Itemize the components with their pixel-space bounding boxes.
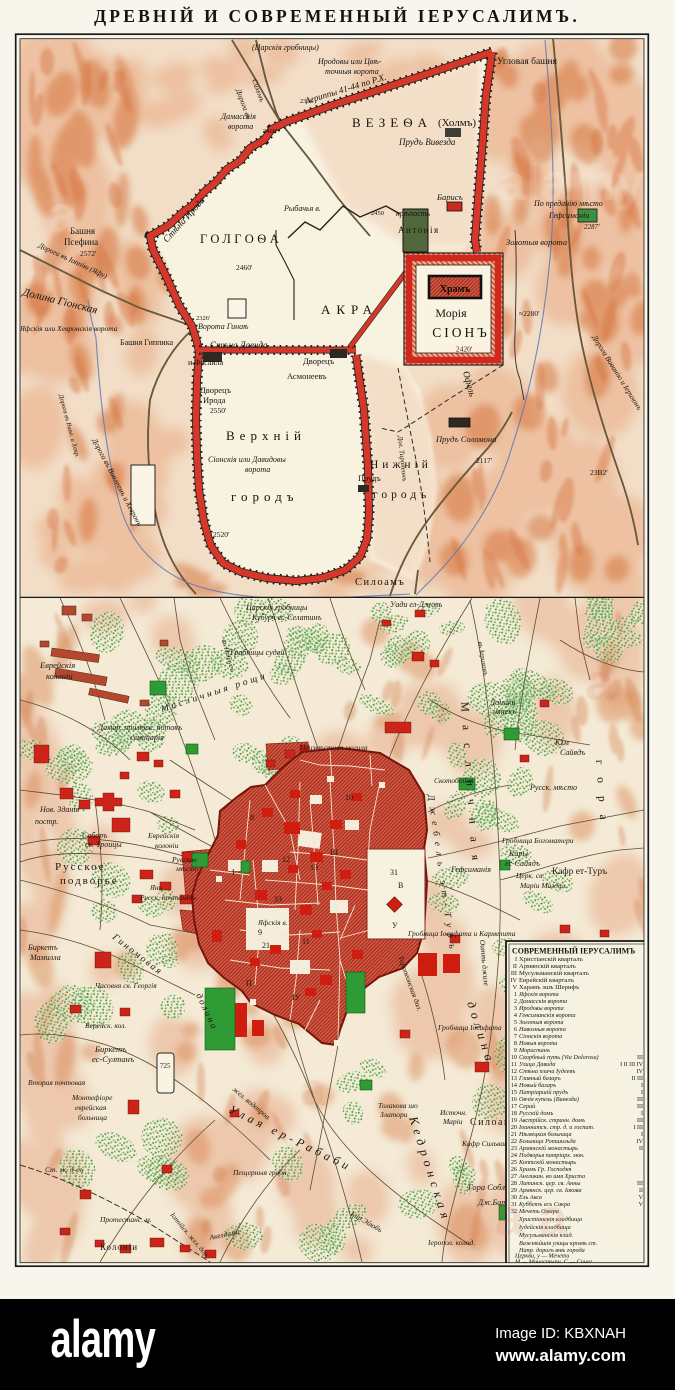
svg-text:alamy: alamy (51, 1309, 157, 1369)
svg-text:Асмонеевъ: Асмонеевъ (287, 371, 327, 381)
svg-text:еврейская: еврейская (75, 1103, 107, 1112)
svg-text:a: a (48, 186, 78, 244)
svg-text:8: 8 (250, 813, 254, 822)
svg-text:Биркетъ: Биркетъ (94, 1044, 127, 1054)
svg-text:(Холмъ): (Холмъ) (438, 117, 476, 129)
svg-text:колоніи: колоніи (46, 671, 73, 681)
svg-text:нянекъ: нянекъ (493, 707, 516, 716)
svg-text:10: 10 (511, 1054, 517, 1061)
svg-text:Армянскій монастырь: Армянскій монастырь (518, 1145, 578, 1152)
svg-text:Кафр Сильванъ: Кафр Сильванъ (461, 1139, 512, 1148)
svg-text:Коптскій монастырь: Коптскій монастырь (518, 1159, 576, 1166)
svg-text:Башня Гиппика: Башня Гиппика (120, 338, 173, 347)
svg-text:Стѣна плача Іудеевъ: Стѣна плача Іудеевъ (519, 1068, 576, 1075)
svg-text:I: I (641, 1090, 643, 1096)
svg-text:ІУ: ІУ (292, 993, 301, 1002)
svg-text:Вторая почтовая: Вторая почтовая (28, 1078, 86, 1087)
svg-text:Image ID: KBXNAH: Image ID: KBXNAH (495, 1325, 626, 1342)
svg-text:Янь: Янь (149, 883, 163, 892)
svg-text:подворье: подворье (60, 875, 119, 887)
svg-text:Источн.: Источн. (439, 1108, 467, 1117)
svg-text:Маріи: Маріи (442, 1117, 463, 1126)
svg-text:I III: I III (634, 1125, 644, 1131)
svg-text:Силоамъ: Силоамъ (355, 577, 405, 588)
svg-text:Золотыя ворота: Золотыя ворота (519, 1019, 563, 1026)
svg-text:Русское: Русское (171, 855, 198, 864)
svg-text:Сайядъ: Сайядъ (560, 748, 585, 757)
svg-text:Гефсиманіи: Гефсиманіи (548, 211, 589, 220)
svg-text:ворота: ворота (228, 122, 253, 131)
svg-text:Дворецъ: Дворецъ (200, 385, 232, 395)
svg-text:ворота: ворота (245, 465, 270, 474)
svg-text:24: 24 (511, 1152, 517, 1159)
svg-text:Яфскія или Хевронскія ворота: Яфскія или Хевронскія ворота (19, 324, 118, 333)
svg-text:I: I (515, 956, 517, 963)
svg-text:2460': 2460' (236, 263, 253, 272)
svg-text:Кубурч ес-Селатинъ: Кубурч ес-Селатинъ (251, 613, 321, 622)
svg-text:II: II (513, 963, 517, 970)
svg-text:Іоаннитск. стр. д. и госпит.: Іоаннитск. стр. д. и госпит. (518, 1124, 594, 1131)
svg-text:2326': 2326' (196, 315, 210, 322)
svg-text:Иродовы или Цвѣ-: Иродовы или Цвѣ- (317, 57, 382, 66)
svg-text:Стѣна Давида: Стѣна Давида (210, 340, 268, 350)
svg-text:Русск. мѣсто: Русск. мѣсто (529, 783, 577, 792)
svg-text:Серай: Серай (519, 1103, 536, 1110)
svg-text:Еврейскій кварталъ: Еврейскій кварталъ (519, 977, 575, 984)
svg-text:Дворецъ: Дворецъ (303, 356, 335, 366)
svg-text:a: a (300, 1063, 326, 1115)
svg-text:9: 9 (514, 1047, 517, 1054)
svg-text:a: a (585, 654, 615, 712)
svg-text:Новыя ворота: Новыя ворота (518, 1040, 557, 1047)
svg-text:alamy: alamy (497, 154, 645, 212)
svg-text:2117': 2117' (476, 456, 493, 465)
svg-text:ес-Сайядъ: ес-Сайядъ (505, 859, 540, 868)
svg-text:14: 14 (511, 1082, 517, 1089)
svg-text:Царскія гробницы: Царскія гробницы (245, 603, 308, 612)
svg-text:9: 9 (258, 928, 262, 937)
svg-text:Неизвѣстная могила: Неизвѣстная могила (299, 743, 368, 752)
svg-text:≈2280': ≈2280' (519, 309, 540, 318)
svg-text:Навозныя ворота: Навозныя ворота (518, 1026, 566, 1033)
svg-text:12: 12 (511, 1068, 517, 1075)
svg-text:I: I (641, 1111, 643, 1117)
svg-text:Армянскій кварталъ: Армянскій кварталъ (519, 963, 576, 970)
svg-text:10: 10 (345, 793, 353, 802)
svg-text:Кары: Кары (508, 849, 528, 858)
svg-text:III: III (511, 970, 517, 977)
svg-text:колоніи: колоніи (155, 841, 179, 850)
svg-text:Сіонскія или Давидовы: Сіонскія или Давидовы (208, 455, 286, 464)
svg-text:Антонія: Антонія (398, 225, 440, 235)
svg-text:Ш: Ш (330, 848, 338, 857)
svg-text:1: 1 (514, 991, 517, 998)
svg-text:11: 11 (302, 937, 310, 946)
svg-text:У: У (392, 921, 398, 930)
svg-text:Еврейскія: Еврейскія (39, 660, 75, 670)
svg-text:Гробница Іосафата и Кармелита: Гробница Іосафата и Кармелита (407, 929, 516, 938)
svg-text:IV: IV (637, 1069, 644, 1075)
svg-text:2287': 2287' (584, 223, 600, 231)
svg-text:Іеропол. колод.: Іеропол. колод. (427, 1238, 475, 1247)
svg-text:23В2': 23В2' (590, 468, 608, 477)
svg-text:больница: больница (78, 1113, 107, 1122)
svg-text:Монтефіоре: Монтефіоре (71, 1093, 113, 1102)
svg-text:Маріи Магдал.: Маріи Магдал. (519, 881, 567, 890)
svg-text:ДРЕВНІЙ И СОВРЕМЕННЫЙ ІЕРУСАЛИ: ДРЕВНІЙ И СОВРЕМЕННЫЙ ІЕРУСАЛИМЪ. (94, 6, 580, 26)
svg-text:Австрійск. странн. домъ: Австрійск. странн. домъ (518, 1117, 586, 1124)
svg-text:Англикан. во имя Христа: Англикан. во имя Христа (518, 1173, 585, 1180)
svg-text:2550': 2550' (210, 406, 227, 415)
svg-text:Верхній: Верхній (226, 428, 306, 443)
svg-text:5: 5 (514, 1019, 517, 1026)
svg-text:Храмъ: Храмъ (440, 284, 471, 295)
svg-text:Улица Давида: Улица Давида (519, 1061, 556, 1068)
svg-text:Нов. Зданія: Нов. Зданія (39, 805, 80, 814)
svg-text:20: 20 (511, 1124, 517, 1131)
svg-text:св. Троицы: св. Троицы (85, 840, 122, 849)
svg-text:26: 26 (511, 1166, 517, 1173)
svg-text:21: 21 (511, 1131, 517, 1138)
svg-text:Христіанскій кварталъ: Христіанскій кварталъ (519, 956, 583, 963)
svg-text:городъ: городъ (231, 489, 298, 504)
svg-text:АКРА: АКРА (321, 302, 378, 317)
svg-text:2336: 2336 (300, 98, 314, 105)
svg-text:2450: 2450 (371, 210, 384, 217)
svg-text:V: V (639, 1195, 644, 1201)
svg-text:семинарія: семинарія (130, 733, 164, 742)
svg-text:19: 19 (511, 1117, 517, 1124)
svg-text:Верейск. кол.: Верейск. кол. (85, 1021, 126, 1030)
svg-text:Харамъ эшъ Шерифъ: Харамъ эшъ Шерифъ (519, 984, 580, 991)
svg-text:Морія: Морія (435, 306, 467, 320)
svg-text:Еврейскія: Еврейскія (147, 831, 180, 840)
svg-text:Домики: Домики (489, 698, 516, 707)
svg-text:Яфскія в.: Яфскія в. (257, 918, 288, 927)
svg-text:I: I (641, 1083, 643, 1089)
svg-text:4: 4 (514, 1012, 517, 1019)
svg-text:2460': 2460' (263, 128, 277, 135)
svg-text:и Фасаила: и Фасаила (188, 358, 224, 367)
svg-text:Иродовы ворота: Иродовы ворота (518, 1005, 564, 1012)
svg-text:16: 16 (511, 1096, 517, 1103)
svg-text:Гефсиманія: Гефсиманія (450, 865, 491, 874)
svg-text:18: 18 (511, 1110, 517, 1117)
svg-text:7: 7 (514, 1033, 517, 1040)
svg-text:Овчія купель (Виѳезда): Овчія купель (Виѳезда) (519, 1096, 579, 1103)
svg-text:11: 11 (511, 1061, 517, 1068)
svg-text:25: 25 (511, 1159, 517, 1166)
svg-text:8: 8 (514, 1040, 517, 1047)
svg-text:Соборъ: Соборъ (82, 831, 107, 840)
svg-text:13: 13 (511, 1075, 517, 1082)
svg-text:Ворота Гинаѣ: Ворота Гинаѣ (198, 322, 249, 331)
svg-text:Геѳсиманскія ворота: Геѳсиманскія ворота (518, 1012, 575, 1019)
svg-text:a a: a a (495, 1189, 568, 1247)
svg-text:III: III (637, 1118, 643, 1124)
svg-text:2572': 2572' (80, 249, 97, 258)
svg-text:23: 23 (511, 1145, 517, 1152)
svg-text:Кафр ет-Туръ: Кафр ет-Туръ (552, 866, 607, 877)
svg-text:12: 12 (282, 855, 290, 864)
svg-text:П: П (246, 979, 252, 988)
svg-text:Нѣмецкая больница: Нѣмецкая больница (518, 1131, 572, 1138)
svg-text:III: III (637, 1104, 643, 1110)
svg-text:Гробницы судей: Гробницы судей (229, 648, 284, 657)
svg-text:V: V (639, 1202, 644, 1208)
svg-text:Ирода: Ирода (203, 395, 226, 405)
svg-text:точныя ворота: точныя ворота (325, 67, 379, 76)
svg-text:3: 3 (514, 1005, 517, 1012)
svg-text:ГОЛГОѲА: ГОЛГОѲА (200, 232, 282, 246)
svg-text:Гробница Богоматери: Гробница Богоматери (501, 836, 574, 845)
svg-text:мѣсто: мѣсто (175, 864, 199, 873)
svg-text:15: 15 (511, 1089, 517, 1096)
svg-text:21: 21 (262, 941, 270, 950)
svg-text:Мамилла: Мамилла (29, 953, 61, 962)
svg-text:Сіонскія ворота: Сіонскія ворота (519, 1033, 562, 1040)
svg-text:II: II (639, 1188, 643, 1194)
svg-text:III: III (637, 1055, 643, 1061)
svg-text:Колоніи: Колоніи (100, 1242, 138, 1252)
svg-text:Прудъ Соломона: Прудъ Соломона (435, 434, 496, 444)
svg-text:IV: IV (510, 977, 517, 984)
svg-text:Толакова шо: Толакова шо (378, 1101, 418, 1110)
svg-text:Рыбачья в.: Рыбачья в. (283, 204, 321, 213)
svg-text:III: III (637, 1181, 643, 1187)
svg-text:Пещерныя гробн.: Пещерныя гробн. (232, 1168, 289, 1177)
svg-text:6: 6 (514, 1026, 517, 1033)
svg-text:II: II (639, 1146, 643, 1152)
svg-text:Церк. св.: Церк. св. (515, 871, 544, 880)
svg-text:725: 725 (160, 1062, 171, 1070)
svg-text:www.alamy.com: www.alamy.com (495, 1346, 626, 1365)
svg-text:Русскій домъ: Русскій домъ (518, 1110, 554, 1117)
svg-text:Часовня св. Георгія: Часовня св. Георгія (95, 981, 157, 990)
svg-text:Мористанъ: Мористанъ (518, 1047, 551, 1054)
svg-text:Русск. почтамтъ: Русск. почтамтъ (139, 893, 196, 902)
svg-text:Храмъ Гр. Господня: Храмъ Гр. Господня (518, 1166, 572, 1173)
svg-text:городъ: городъ (373, 489, 430, 501)
svg-text:IV: IV (637, 1139, 644, 1145)
svg-text:Больница Ротшильда: Больница Ротшильда (518, 1138, 576, 1145)
svg-text:Подворья патріарх. мон.: Подворья патріарх. мон. (518, 1152, 585, 1159)
svg-text:постр.: постр. (35, 817, 58, 826)
svg-text:І: І (232, 868, 235, 877)
svg-text:СОВРЕМЕННЫЙ ІЕРУСАЛИМЪ: СОВРЕМЕННЫЙ ІЕРУСАЛИМЪ (512, 947, 635, 956)
svg-text:V: V (513, 984, 518, 991)
svg-text:I: I (641, 1132, 643, 1138)
svg-text:Дамар. прилюск. потокъ: Дамар. прилюск. потокъ (97, 723, 182, 732)
svg-text:2420': 2420' (456, 345, 473, 354)
svg-text:Биркетъ: Биркетъ (27, 943, 58, 952)
svg-text:СІОНЪ: СІОНЪ (432, 325, 490, 340)
svg-text:Русское: Русское (55, 861, 106, 873)
svg-text:Яфскія ворота: Яфскія ворота (518, 991, 559, 998)
svg-text:Барисъ: Барисъ (436, 192, 463, 202)
svg-text:I II III IV: I II III IV (620, 1062, 643, 1068)
svg-text:III: III (637, 1097, 643, 1103)
svg-text:(Царскія гробницы): (Царскія гробницы) (252, 43, 319, 52)
svg-text:22: 22 (511, 1138, 517, 1145)
svg-text:Латинск. цер. св. Анны: Латинск. цер. св. Анны (518, 1180, 580, 1187)
svg-text:2520': 2520' (213, 530, 230, 539)
svg-text:Угловая башня: Угловая башня (497, 56, 558, 67)
svg-text:Золотыя ворота: Золотыя ворота (506, 237, 567, 247)
svg-text:Скорбный путь (Via Dolorosa): Скорбный путь (Via Dolorosa) (519, 1054, 599, 1061)
svg-text:17: 17 (511, 1103, 517, 1110)
svg-text:ВЕЗЕѲА: ВЕЗЕѲА (352, 115, 432, 130)
svg-text:2: 2 (514, 998, 517, 1005)
svg-text:В: В (398, 881, 403, 890)
svg-text:Прудъ: Прудъ (358, 473, 381, 483)
svg-text:Патріаршій прудъ: Патріаршій прудъ (518, 1089, 569, 1096)
svg-text:Кλм: Кλм (554, 738, 569, 747)
svg-text:Прудъ Вивезда: Прудъ Вивезда (398, 137, 456, 147)
svg-text:Ст. эк. д-съ: Ст. эк. д-съ (45, 1165, 83, 1174)
svg-text:Уади ел-Джозъ: Уади ел-Джозъ (390, 600, 442, 609)
svg-text:27: 27 (511, 1173, 517, 1180)
svg-text:Новый базаръ: Новый базаръ (518, 1082, 557, 1089)
svg-text:II III: II III (632, 1076, 644, 1082)
svg-text:31: 31 (390, 868, 398, 877)
svg-text:Дамасскія ворота: Дамасскія ворота (518, 998, 567, 1005)
svg-text:Протестанс. м.: Протестанс. м. (99, 1215, 152, 1224)
svg-text:28: 28 (511, 1180, 517, 1187)
svg-text:13: 13 (310, 863, 318, 872)
svg-text:крѣпость: крѣпость (396, 209, 430, 218)
svg-text:ес-Султанъ: ес-Султанъ (92, 1054, 135, 1064)
svg-text:Гробница Іосафата: Гробница Іосафата (437, 1023, 502, 1032)
svg-text:Главный базаръ: Главный базаръ (518, 1075, 561, 1082)
svg-text:33: 33 (274, 895, 282, 904)
svg-text:Златори: Златори (380, 1110, 408, 1119)
svg-text:Мусульманскій кварталъ: Мусульманскій кварталъ (519, 970, 589, 977)
